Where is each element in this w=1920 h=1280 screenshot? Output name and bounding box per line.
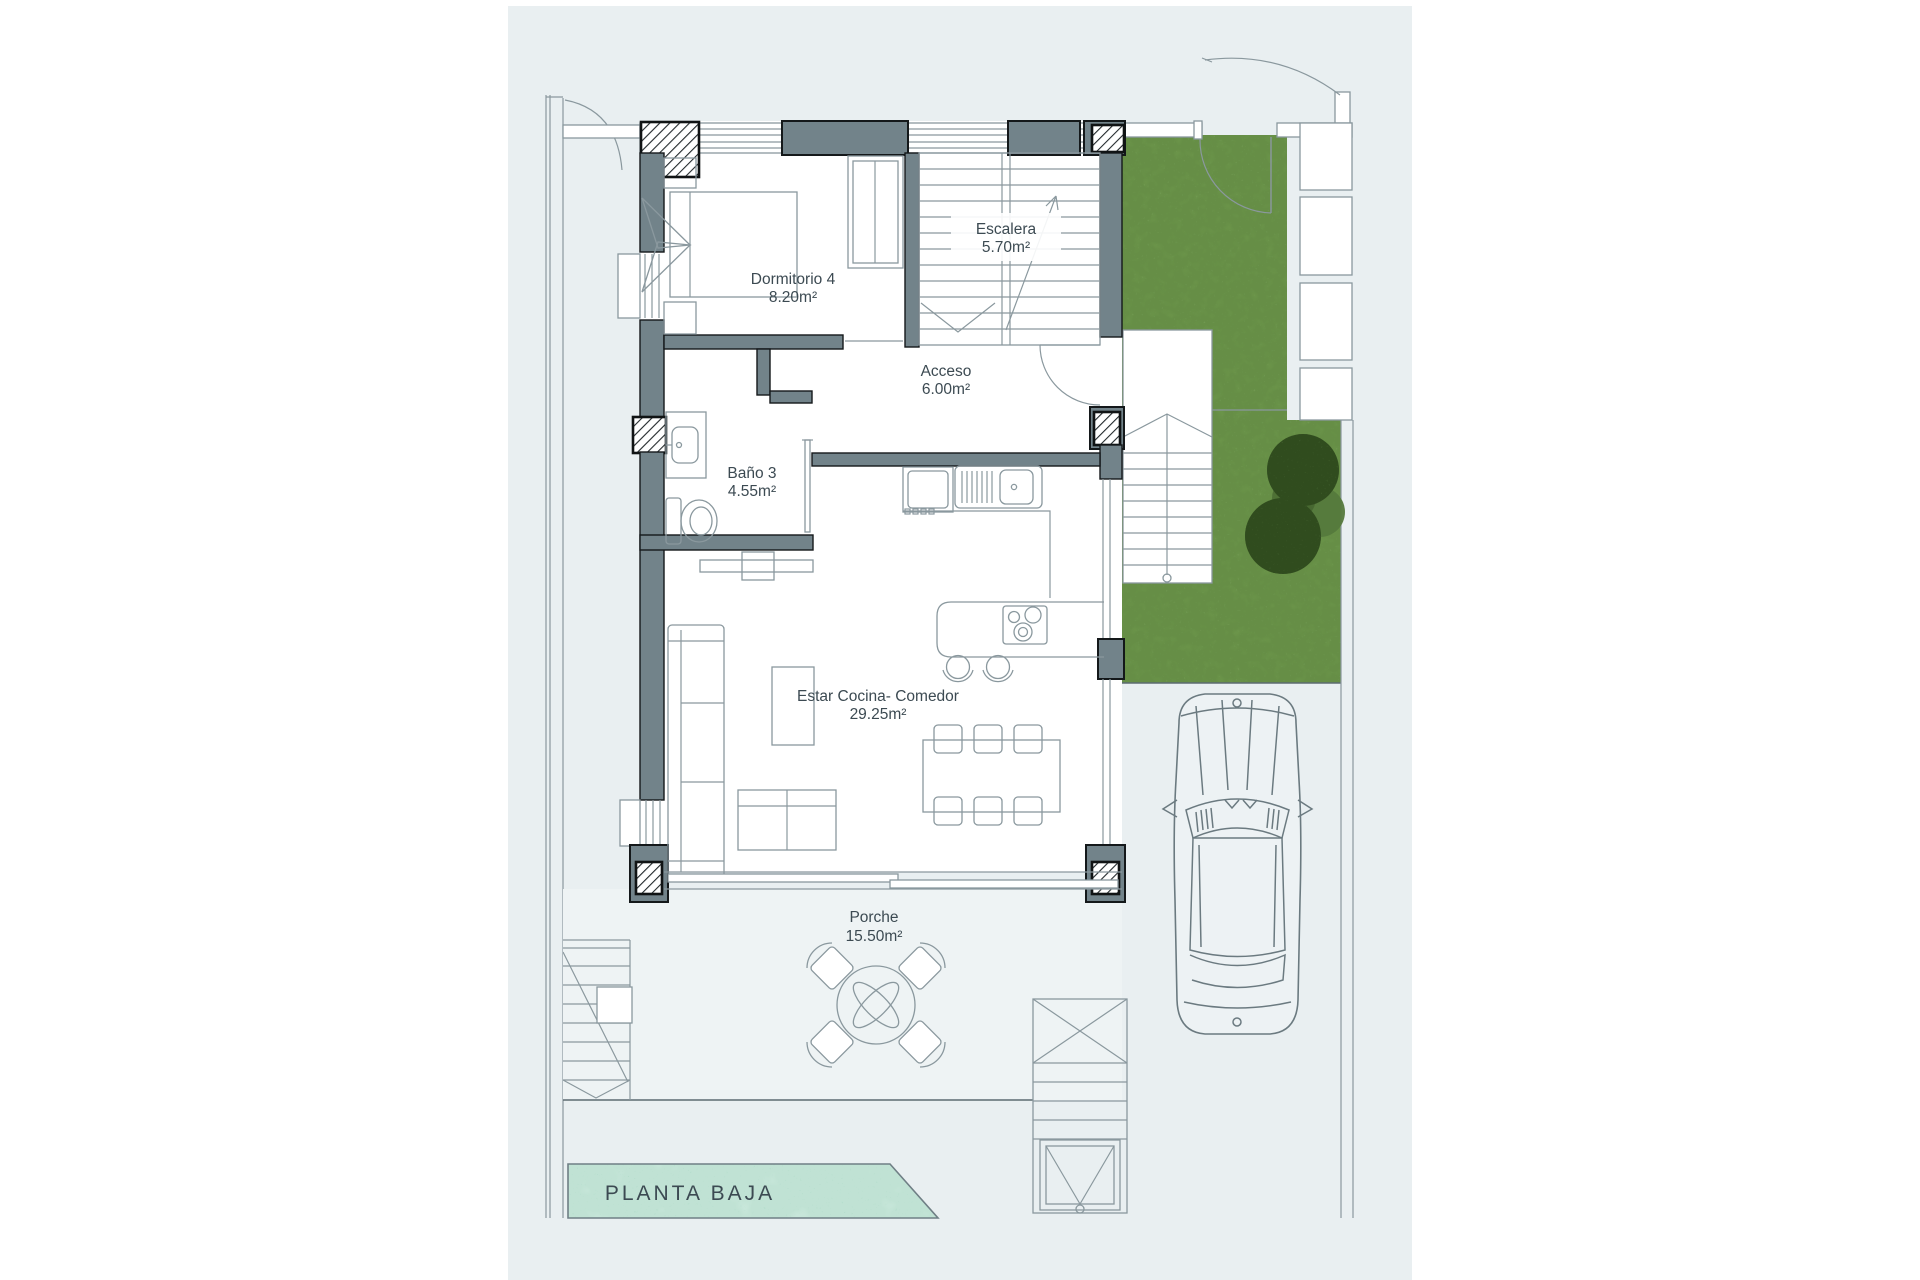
room-label-acceso: Acceso xyxy=(921,363,972,380)
room-area-estar: 29.25m² xyxy=(850,706,907,723)
stair-west-wall xyxy=(905,153,919,347)
gate-leaf xyxy=(1335,92,1350,123)
room-area-acceso: 6.00m² xyxy=(922,381,970,398)
room-area-dormitorio: 8.20m² xyxy=(769,289,817,306)
garden-stair xyxy=(1123,330,1212,583)
wall-pier xyxy=(782,121,908,155)
gate-post xyxy=(1194,121,1202,139)
floorplan-page: Dormitorio 4 8.20m² Escalera 5.70m² Acce… xyxy=(0,0,1920,1280)
wall-pier xyxy=(1008,121,1080,155)
column-east xyxy=(1094,412,1120,445)
room-area-porche: 15.50m² xyxy=(846,928,903,945)
room-label-escalera: Escalera xyxy=(976,221,1037,238)
room-area-escalera: 5.70m² xyxy=(982,239,1030,256)
bedroom-south-wall xyxy=(664,335,843,349)
neighbor-structures xyxy=(1300,123,1352,420)
room-label-porche: Porche xyxy=(849,909,898,926)
room-label-estar: Estar Cocina- Comedor xyxy=(797,688,959,705)
porch-floor xyxy=(563,889,1122,1100)
corner-column-sw xyxy=(636,862,662,894)
bath-door-jamb xyxy=(770,391,812,403)
room-label-bano: Baño 3 xyxy=(727,465,776,482)
stair-landing xyxy=(597,987,632,1023)
kitchen-north-wall xyxy=(812,453,1100,466)
floor-title: PLANTA BAJA xyxy=(605,1182,775,1205)
car xyxy=(1163,694,1312,1034)
floorplan-drawing: Dormitorio 4 8.20m² Escalera 5.70m² Acce… xyxy=(0,0,1920,1280)
room-area-bano: 4.55m² xyxy=(728,483,776,500)
room-label-dormitorio: Dormitorio 4 xyxy=(751,271,836,288)
bath-east-wall xyxy=(757,349,770,395)
corner-column-ne xyxy=(1092,125,1124,152)
column-west xyxy=(633,417,666,453)
